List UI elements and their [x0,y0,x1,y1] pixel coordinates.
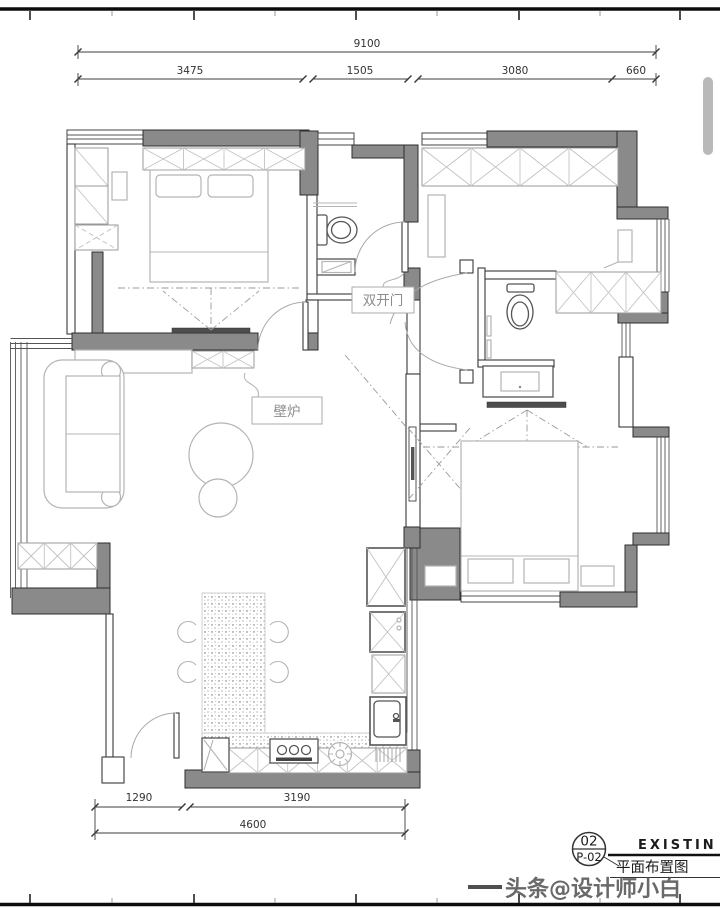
sheet-code: P-02 [576,850,601,864]
tv-bedroom2 [487,402,566,408]
fireplace-label: 壁炉 [252,397,322,424]
dishwasher [372,655,405,693]
dim-top-seg3: 3080 [502,65,529,77]
cabinet-tall [428,195,445,257]
cooktop [270,739,318,763]
sheet-ruler-ticks-top [30,11,680,20]
scrollbar-thumb[interactable] [703,77,713,155]
bathroom-2 [487,284,534,358]
door-kitchen [131,713,179,758]
toilet-2 [507,284,534,329]
dim-top-total: 9100 [354,38,381,50]
dim-top-seg2: 1505 [347,65,374,77]
appliance-column [367,548,406,762]
pillow [208,175,253,197]
kitchen-dining [131,548,407,773]
sofa [44,360,124,508]
cabinet-low [18,543,97,569]
nightstand [425,566,456,586]
pillow [524,559,569,583]
island-counter [202,593,265,735]
closet-master [556,272,661,313]
washer [370,612,405,652]
wardrobe-top-master [422,148,618,186]
tv-bedroom1 [172,328,250,333]
floor-plan-canvas: 9100 3475 1505 3080 660 1290 3190 4600 [0,0,720,911]
pillow [468,559,513,583]
wok-burner [329,743,352,766]
door-bedroom1 [258,302,308,350]
bedroom-1 [75,148,308,350]
coffee-table-large [189,423,253,487]
dim-bottom-seg2: 3190 [284,792,311,804]
dim-bottom-seg1: 1290 [126,792,153,804]
fridge [367,548,405,606]
bed-master [425,441,614,591]
drawing-title-en: EXISTIN [638,838,717,853]
bed-double [150,170,268,282]
tv-cabinet-master [483,366,566,408]
bathroom-1 [313,203,408,275]
title-block: 02 P-02 EXISTIN 平面布置图 [573,833,720,878]
drawing-title: 平面布置图 [616,859,689,876]
door-bathroom1 [355,222,408,272]
bay-window-right-bottom [657,437,669,533]
sink-1 [317,259,355,275]
pillow [156,175,201,197]
double-door-label-text: 双开门 [363,293,404,309]
oven [202,738,229,772]
double-door-label: 双开门 [352,287,414,313]
wardrobe-top [143,148,305,170]
nightstand [112,172,127,200]
sheet-number: 02 [580,834,597,850]
window-right-mid [622,322,630,357]
dim-top-seg4: 660 [626,65,646,77]
desk [604,230,632,268]
dim-top-seg1: 3475 [177,65,204,77]
toilet-1 [317,215,357,245]
living-room: 壁炉 [18,350,322,569]
double-door [390,260,473,383]
dim-bottom-total: 4600 [240,819,267,831]
nightstand [581,566,614,586]
watermark: 头条@设计师小白 [468,876,681,902]
fireplace-label-text: 壁炉 [274,404,301,420]
dimension-bottom: 1290 3190 4600 [92,792,409,840]
dimension-top: 9100 3475 1505 3080 660 [75,38,660,86]
ceiling-projection-lines [118,288,300,330]
coffee-table-small [199,479,237,517]
watermark-text: 头条@设计师小白 [505,876,681,902]
